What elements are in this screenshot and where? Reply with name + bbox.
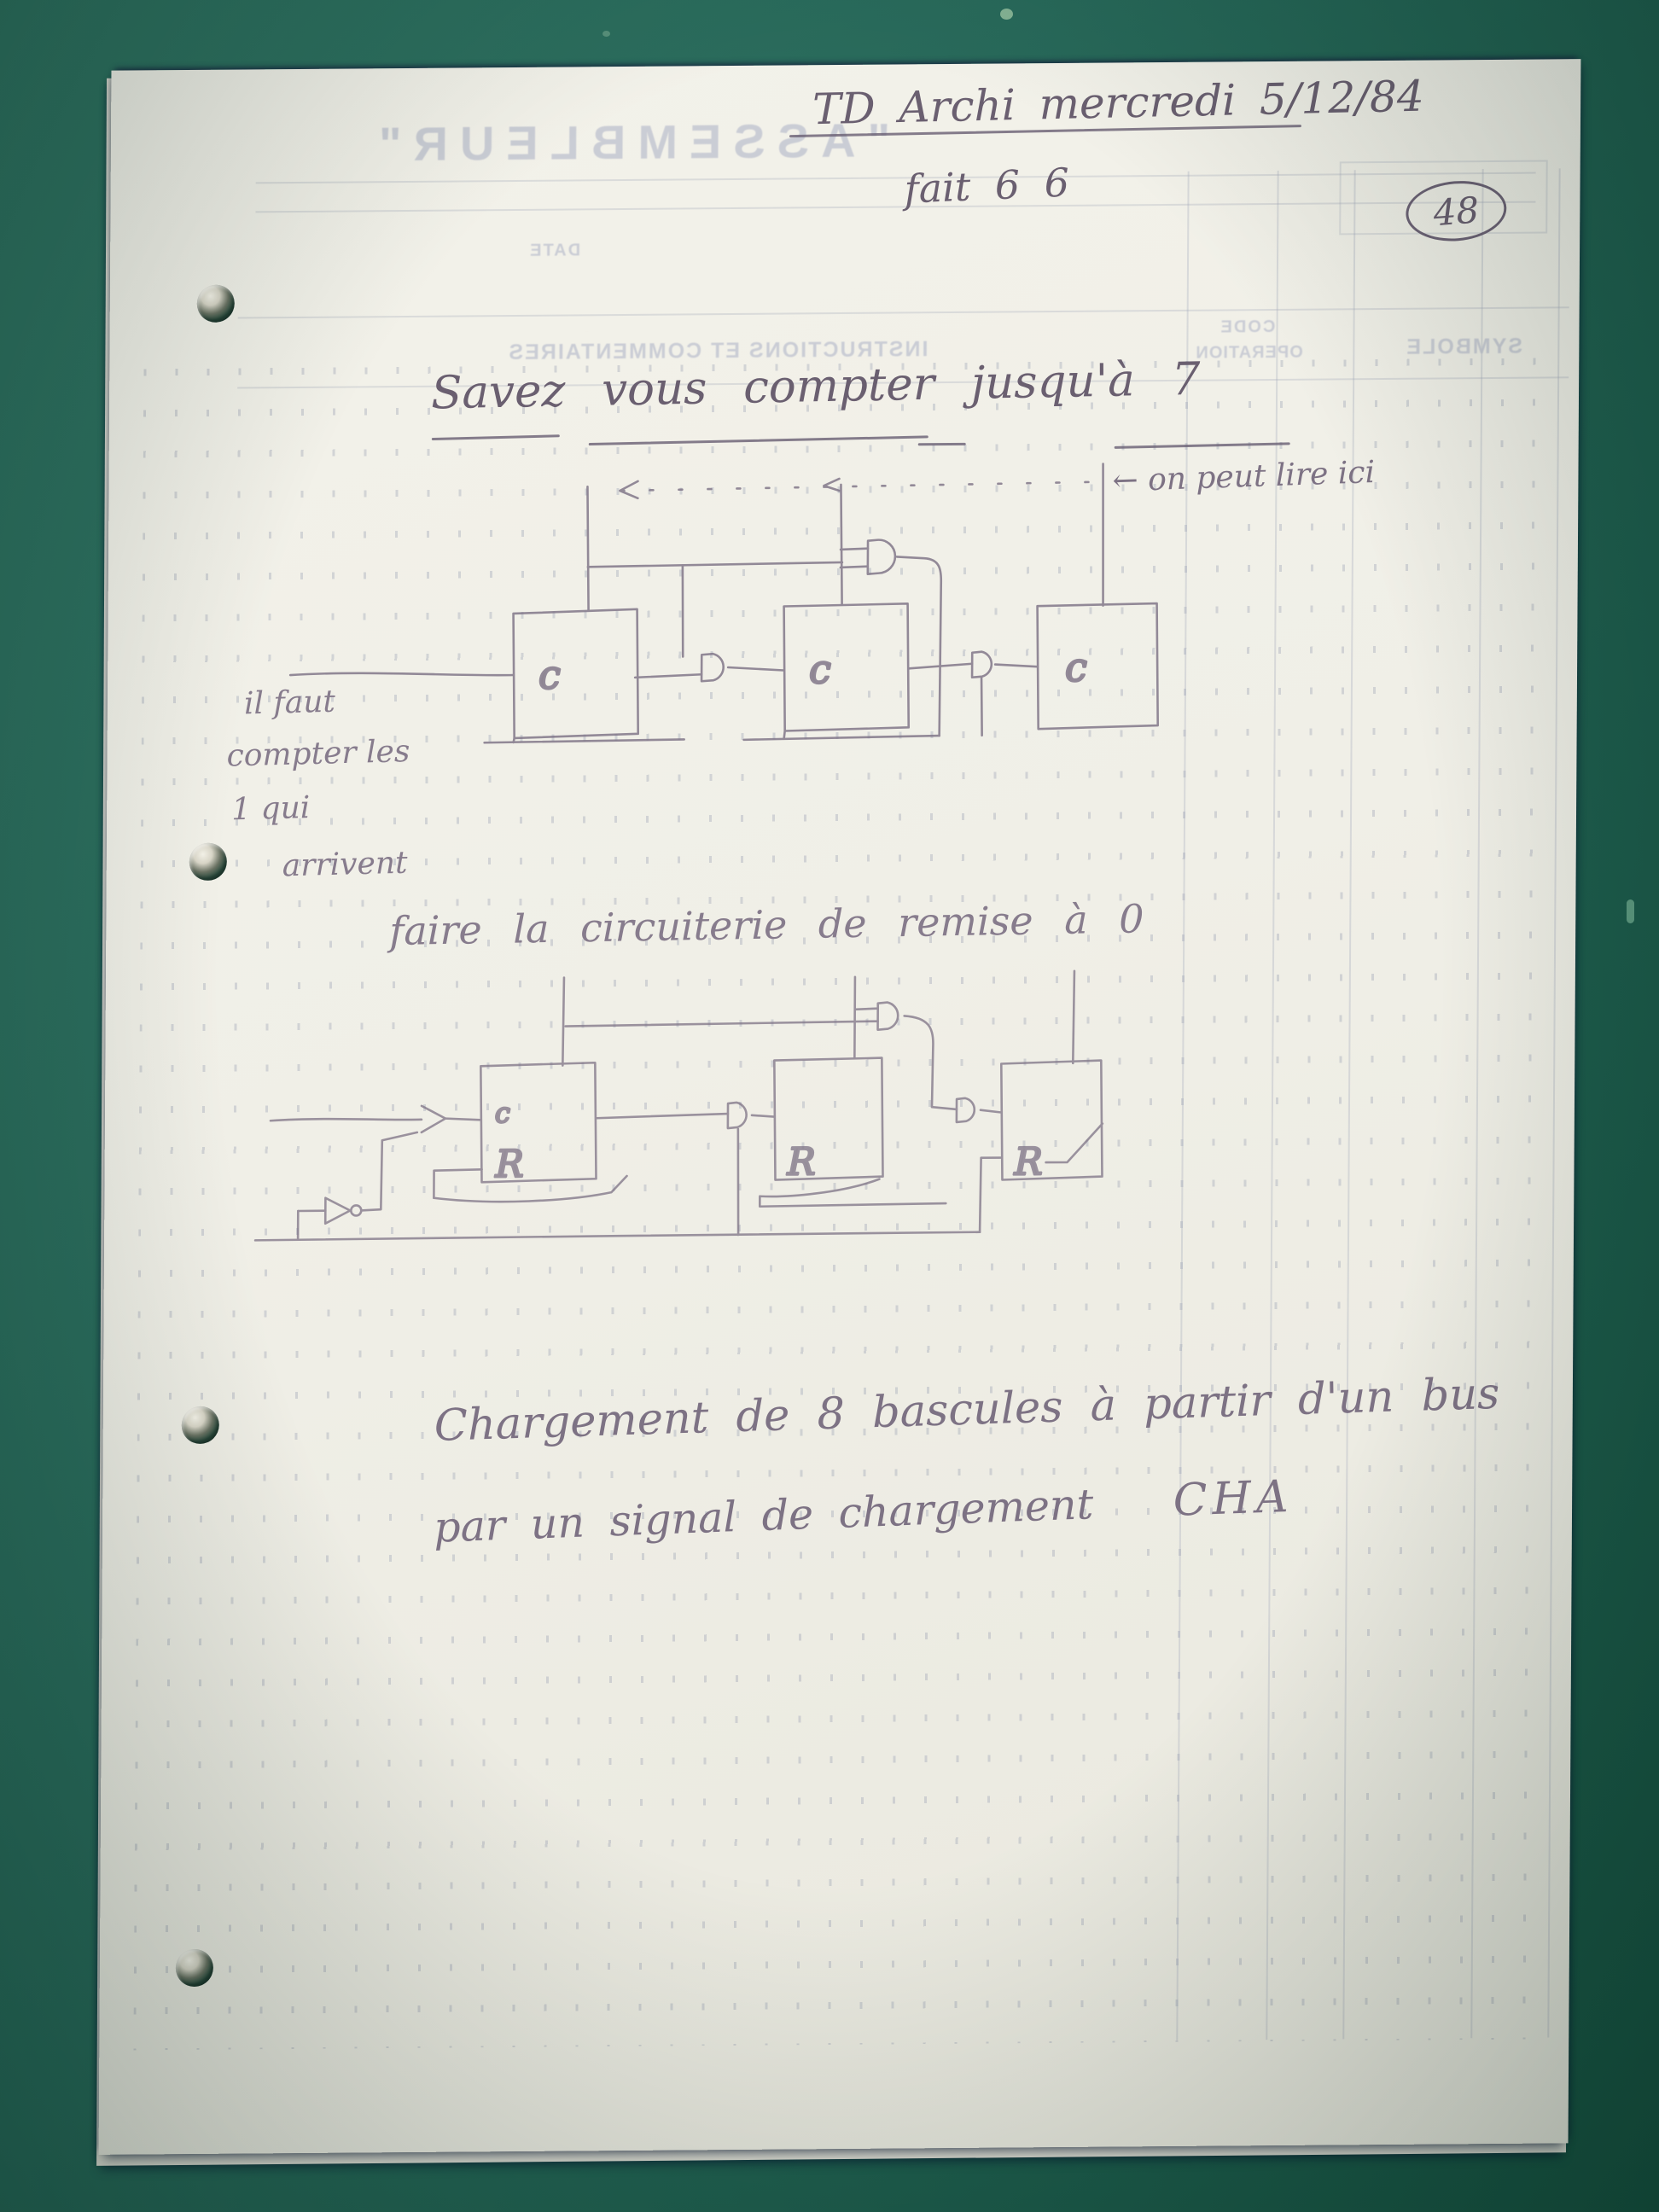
wire: [909, 664, 972, 669]
wire: [588, 562, 842, 567]
wire: [854, 977, 878, 1058]
and-gate: [878, 1002, 899, 1029]
form-rule: [238, 306, 1569, 318]
count-note-line: il faut: [244, 684, 335, 722]
wire: [1046, 1124, 1103, 1163]
punch-hole: [197, 285, 235, 323]
page-number-circled: 48: [1404, 178, 1508, 245]
wire: [744, 736, 940, 740]
clock-label: c: [1065, 644, 1087, 690]
wire: [361, 1132, 417, 1211]
notebook-page: "ASSEMBLEUR" DATE INSTRUCTIONS ET COMMEN…: [99, 59, 1581, 2155]
form-date-label-mirrored: DATE: [528, 241, 580, 260]
wire: [682, 565, 684, 656]
mat-speck: [602, 31, 610, 37]
exercise-title: Savez vous compter jusqu'à 7: [431, 353, 1200, 420]
form-code-header-line1-mirrored: CODE: [1219, 317, 1275, 338]
wire: [445, 1118, 480, 1120]
flipflop-box: [480, 1062, 597, 1182]
wire: [562, 978, 564, 1066]
title-underline: [918, 443, 966, 445]
wire: [896, 556, 941, 736]
and-gate: [728, 1103, 747, 1128]
reset-label: R: [1013, 1140, 1042, 1184]
punch-hole: [182, 1406, 219, 1444]
title-underline: [432, 434, 560, 440]
arrowhead-icon: [620, 481, 637, 498]
form-code-header-line2-mirrored: OPERATION: [1195, 343, 1303, 364]
wire: [597, 1114, 728, 1118]
inverter-gate: [325, 1198, 350, 1224]
title-underline: [589, 435, 928, 445]
status-note: fait 6 6: [904, 160, 1070, 212]
and-gate: [868, 539, 895, 573]
wire: [752, 1115, 774, 1117]
form-column-line: [1470, 169, 1483, 2038]
load-paragraph-line2-text: par un signal de chargement: [434, 1480, 1094, 1552]
form-column-line: [1342, 170, 1355, 2039]
and-gate: [957, 1098, 975, 1122]
reset-diagram: c R R R: [255, 971, 1103, 1241]
reset-label: R: [786, 1140, 815, 1184]
wire: [635, 674, 701, 678]
wire: [514, 731, 785, 742]
course-header: TD Archi mercredi 5/12/84: [812, 72, 1424, 135]
arrowhead-icon: [422, 1106, 445, 1132]
flipflop-box: [783, 603, 910, 731]
wire: [587, 486, 590, 609]
form-rule: [256, 172, 1536, 184]
photo-background: "ASSEMBLEUR" DATE INSTRUCTIONS ET COMMEN…: [0, 0, 1659, 2212]
load-signal-name: CHA: [1173, 1471, 1294, 1527]
wire: [271, 1118, 422, 1121]
wire: [980, 1158, 1001, 1232]
flipflop-box: [773, 1058, 883, 1180]
wire: [485, 739, 684, 742]
form-title-mirrored: "ASSEMBLEUR": [367, 112, 891, 172]
wire: [981, 678, 982, 736]
read-here-annotation: ← on peut lire ici: [1112, 455, 1375, 498]
wire: [434, 1176, 626, 1202]
load-paragraph-line2: par un signal de chargement CHA: [434, 1471, 1294, 1553]
form-column-line: [1176, 172, 1189, 2040]
wire: [841, 549, 868, 568]
wire: [841, 485, 843, 604]
punch-hole: [176, 1949, 213, 1987]
wire: [995, 664, 1037, 667]
form-grid: [133, 323, 1551, 2050]
wire: [255, 1232, 980, 1241]
and-gate: [701, 654, 724, 681]
wire: [737, 1129, 739, 1235]
flipflop-box: [1000, 1061, 1103, 1180]
mat-speck: [1000, 9, 1013, 20]
form-column-line: [1547, 168, 1560, 2037]
and-gate: [972, 652, 992, 678]
inverter-bubble: [351, 1205, 361, 1215]
clock-label: c: [538, 652, 561, 698]
punch-hole: [189, 843, 227, 881]
mat-speck: [1627, 899, 1634, 923]
title-underline: [1115, 442, 1290, 448]
count-note-line: arrivent: [282, 846, 408, 884]
reset-caption: faire la circuiterie de remise à 0: [389, 895, 1144, 954]
count-note-line: compter les: [226, 734, 410, 773]
wire: [434, 1169, 481, 1197]
form-rule: [255, 201, 1535, 213]
reset-label: R: [494, 1143, 523, 1186]
wire: [981, 1110, 1001, 1113]
wire: [760, 1179, 946, 1207]
counter-diagram: c c c: [290, 463, 1160, 744]
count-note-line: 1 qui: [231, 790, 311, 827]
wire: [904, 1016, 958, 1109]
page-number: 48: [1432, 189, 1480, 234]
wire: [566, 1022, 878, 1027]
arrowhead-icon: [824, 479, 839, 491]
wire: [1073, 971, 1074, 1063]
clock-label: c: [495, 1097, 510, 1129]
feedback-dashed-wire: [620, 482, 1103, 491]
clock-label: c: [809, 646, 831, 692]
flipflop-box: [1037, 603, 1159, 729]
wire: [1103, 464, 1104, 606]
flipflop-box: [513, 609, 639, 738]
load-paragraph-line1: Chargement de 8 bascules à partir d'un b…: [434, 1369, 1499, 1452]
form-column-line: [1266, 171, 1278, 2040]
form-symbol-header-mirrored: SYMBOLE: [1405, 335, 1522, 360]
wire: [290, 672, 513, 677]
wire: [728, 667, 783, 672]
